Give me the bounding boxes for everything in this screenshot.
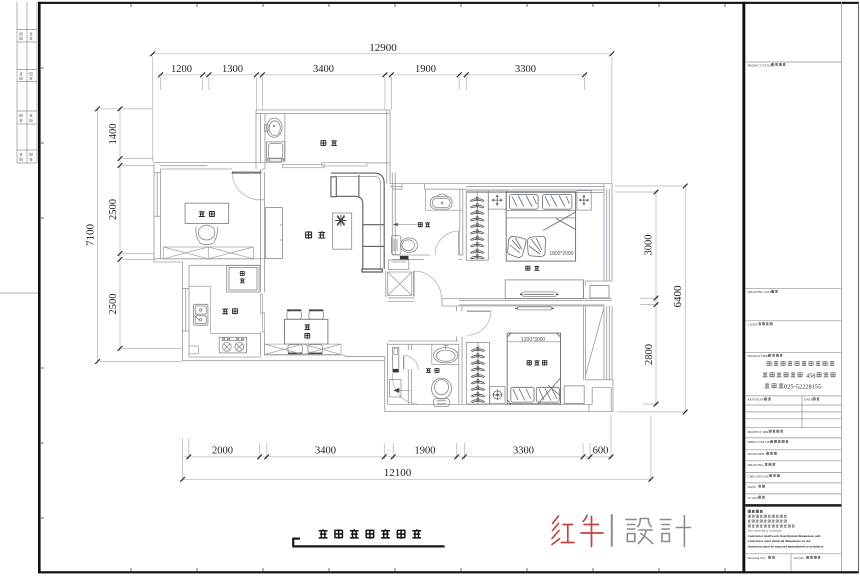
- svg-text:Contractor shall work from fig: Contractor shall work from figured dimen…: [748, 534, 822, 538]
- svg-text:600: 600: [593, 445, 609, 456]
- svg-text:DRAWING TITLE: DRAWING TITLE: [748, 290, 774, 294]
- svg-text:3300: 3300: [515, 64, 536, 75]
- svg-text:3400: 3400: [313, 64, 334, 75]
- svg-text:SCALE: SCALE: [748, 496, 759, 500]
- svg-text:Contractor must check all dime: Contractor must check all dimensions on …: [748, 539, 812, 543]
- svg-text:1400: 1400: [108, 124, 119, 145]
- svg-text:3400: 3400: [315, 445, 336, 456]
- svg-text:Omissions must be reported imm: Omissions must be reported immediately t…: [748, 544, 824, 548]
- svg-text:3300: 3300: [513, 445, 534, 456]
- svg-text:7100: 7100: [85, 224, 97, 247]
- svg-text:Drawing NO: Drawing NO: [748, 556, 766, 560]
- svg-text:1200: 1200: [171, 64, 192, 75]
- svg-text:CHECKED BY: CHECKED BY: [748, 474, 770, 478]
- svg-text:DATE: DATE: [748, 485, 757, 489]
- svg-text:1300: 1300: [222, 64, 243, 75]
- svg-text:DESIGN FIRM: DESIGN FIRM: [748, 354, 770, 358]
- svg-text:2000: 2000: [212, 445, 233, 456]
- svg-text:1900: 1900: [415, 445, 436, 456]
- svg-text:12900: 12900: [369, 42, 397, 54]
- svg-text:458: 458: [806, 372, 815, 379]
- svg-text:1900: 1900: [415, 64, 436, 75]
- svg-text:PROJECT/TITLE: PROJECT/TITLE: [748, 63, 773, 67]
- svg-text:DIRECTOR DFB: DIRECTOR DFB: [748, 440, 773, 444]
- svg-text:DRAWING: DRAWING: [748, 463, 765, 467]
- svg-text:LIGHT: LIGHT: [748, 323, 759, 327]
- svg-text:Job NO: Job NO: [794, 556, 805, 560]
- svg-text:2500: 2500: [108, 199, 119, 220]
- svg-text:1800*2000: 1800*2000: [549, 251, 573, 257]
- svg-text:2800: 2800: [644, 344, 655, 365]
- svg-text:DESIGNER: DESIGNER: [748, 452, 766, 456]
- svg-text:6400: 6400: [672, 285, 684, 308]
- svg-text:3000: 3000: [644, 235, 655, 256]
- svg-text:PROJECT DIR: PROJECT DIR: [748, 430, 770, 434]
- svg-text:025-52228155: 025-52228155: [784, 383, 821, 390]
- svg-text:1200*3000: 1200*3000: [521, 337, 545, 343]
- svg-text:2500: 2500: [108, 294, 119, 315]
- svg-text:DATE: DATE: [804, 398, 813, 402]
- svg-text:12100: 12100: [384, 467, 412, 479]
- svg-text:REVISIONS: REVISIONS: [748, 398, 766, 402]
- svg-text:This drawing is copyright: This drawing is copyright: [748, 529, 782, 533]
